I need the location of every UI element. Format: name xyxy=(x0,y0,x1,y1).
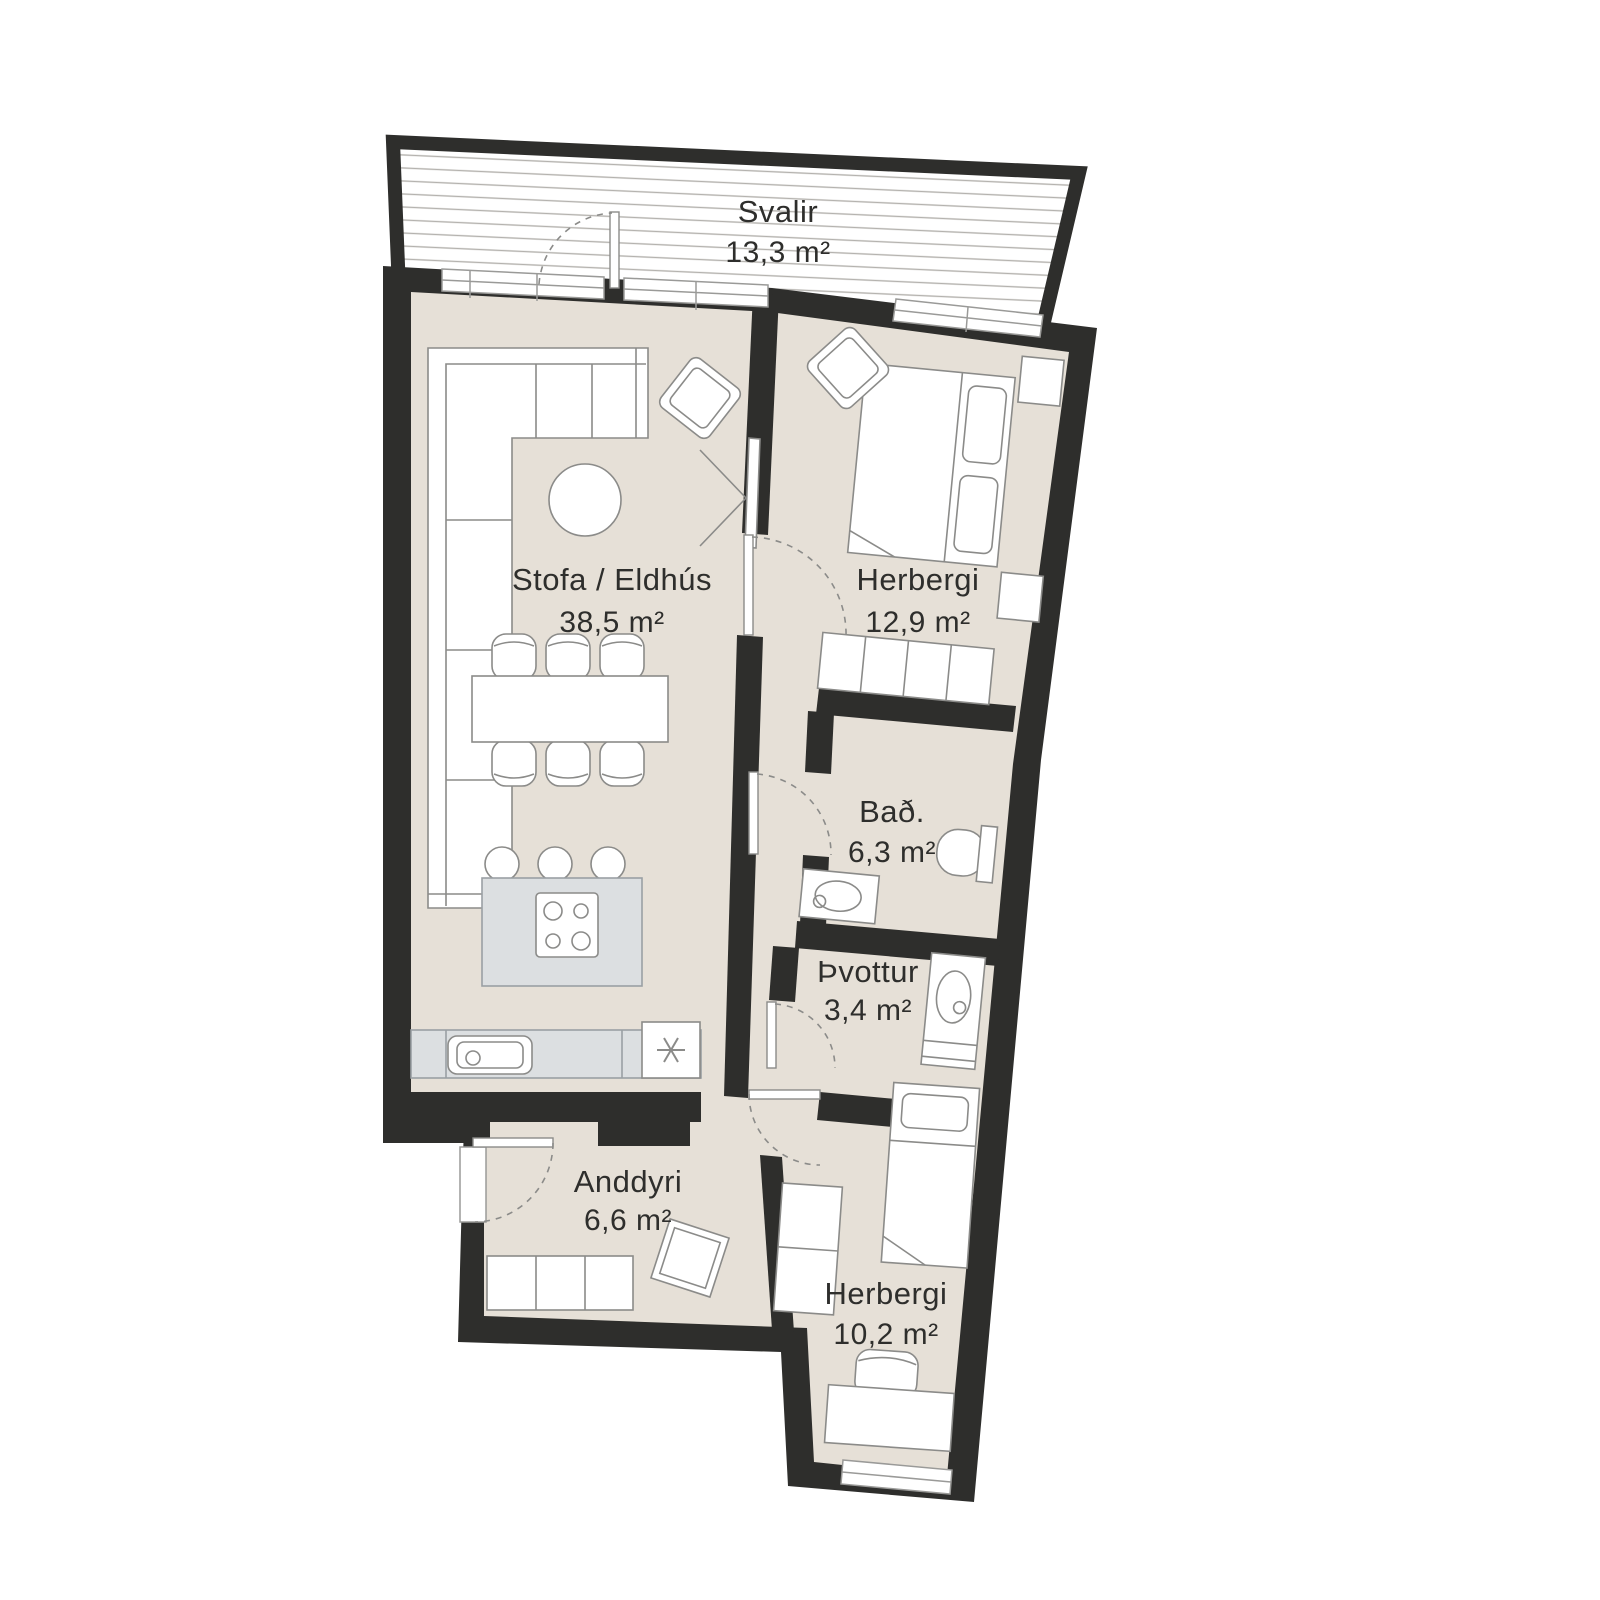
floor-plan: Svalir 13,3 m² Stofa / Eldhús 38,5 m² He… xyxy=(0,0,1600,1600)
fridge xyxy=(642,1022,700,1078)
dining-chair xyxy=(546,740,590,786)
bedroom1-door-leaf xyxy=(744,535,753,635)
dining-chair xyxy=(546,634,590,680)
pillow xyxy=(953,475,998,554)
pillow xyxy=(962,385,1007,464)
floor-plan-page: Svalir 13,3 m² Stofa / Eldhús 38,5 m² He… xyxy=(0,0,1600,1600)
laundry-door-leaf xyxy=(767,1002,776,1068)
dining-chair xyxy=(492,740,536,786)
label-stofa: Stofa / Eldhús xyxy=(512,562,712,597)
label-herbergi1: Herbergi xyxy=(857,562,980,597)
bar-stool xyxy=(591,847,625,881)
laundry-fixtures xyxy=(921,953,985,1070)
bath-vanity xyxy=(799,869,879,924)
nightstand xyxy=(997,572,1043,622)
coffee-table xyxy=(549,464,621,536)
label-anddyri-area: 6,6 m² xyxy=(584,1204,672,1237)
label-thvottur: Þvottur xyxy=(817,954,919,989)
label-bad-area: 6,3 m² xyxy=(848,836,936,869)
nightstand xyxy=(1018,356,1064,406)
laundry-counter xyxy=(921,953,985,1070)
entry-wardrobe xyxy=(487,1256,633,1310)
label-svalir-area: 13,3 m² xyxy=(725,236,830,269)
entry-doorway xyxy=(460,1147,486,1222)
wall-bath-left-upper xyxy=(805,711,834,774)
pillow xyxy=(901,1093,969,1132)
label-anddyri: Anddyri xyxy=(574,1164,683,1199)
wall-step xyxy=(598,1122,690,1146)
label-stofa-area: 38,5 m² xyxy=(559,606,664,639)
cooktop xyxy=(536,893,598,957)
balcony-door-leaf xyxy=(610,212,619,288)
wall-living-bottom xyxy=(411,1092,701,1122)
bathroom-door-leaf xyxy=(749,772,758,854)
dining-table xyxy=(472,676,668,742)
entry-door-leaf xyxy=(473,1138,553,1147)
bedroom2-door-leaf xyxy=(749,1090,820,1099)
label-bad: Bað. xyxy=(859,794,925,829)
bar-stool xyxy=(485,847,519,881)
label-thvottur-area: 3,4 m² xyxy=(824,994,912,1027)
dining-chair xyxy=(492,634,536,680)
label-herbergi2: Herbergi xyxy=(825,1276,948,1311)
dining-chair xyxy=(600,740,644,786)
wall-laundry-left xyxy=(769,946,799,1002)
label-herbergi2-area: 10,2 m² xyxy=(833,1318,938,1351)
label-herbergi1-area: 12,9 m² xyxy=(865,606,970,639)
dining-chair xyxy=(600,634,644,680)
bar-stools xyxy=(485,847,625,881)
label-svalir: Svalir xyxy=(738,194,819,229)
desk xyxy=(825,1385,955,1452)
kitchen-sink xyxy=(448,1036,532,1074)
bar-stool xyxy=(538,847,572,881)
